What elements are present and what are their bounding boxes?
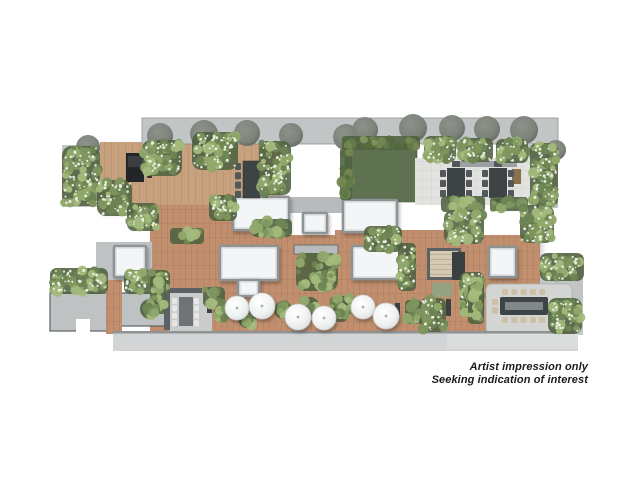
planting-bed xyxy=(102,284,107,289)
planting-bed-flower xyxy=(578,265,580,267)
planting-bed-flower xyxy=(128,275,129,276)
dining-table xyxy=(179,297,193,326)
planting-bed-flower xyxy=(545,221,548,224)
planting-bed-flower xyxy=(533,196,536,199)
planting-bed xyxy=(265,141,276,152)
planting-bed xyxy=(541,268,546,273)
artist-impression-canvas: Artist impression only Seeking indicatio… xyxy=(0,0,640,480)
planter-box xyxy=(317,251,329,263)
planting-bed xyxy=(214,133,225,144)
planting-bed-flower xyxy=(159,165,161,167)
planting-bed-flower xyxy=(461,240,463,242)
planting-bed-flower xyxy=(569,309,571,311)
planting-bed-flower xyxy=(285,145,287,147)
planting-bed xyxy=(272,157,280,165)
dining-chair xyxy=(172,313,177,319)
planting-bed-flower xyxy=(562,265,564,267)
planting-bed-flower xyxy=(460,231,462,233)
planting-bed xyxy=(74,190,85,201)
planting-bed-flower xyxy=(481,274,483,276)
planting-bed-flower xyxy=(76,200,78,202)
planting-bed-flower xyxy=(286,154,288,156)
planting-bed-flower xyxy=(477,155,479,157)
planting-bed-flower xyxy=(216,156,218,158)
planter-box xyxy=(328,273,333,278)
planting-bed-flower xyxy=(404,252,406,254)
planting-bed-flower xyxy=(153,162,156,165)
planting-bed-flower xyxy=(475,220,477,222)
dining-chair xyxy=(466,170,472,177)
planting-bed-flower xyxy=(569,266,571,268)
planting-bed-flower xyxy=(570,322,572,324)
planting-bed-flower xyxy=(542,161,545,164)
planting-bed-flower xyxy=(63,271,65,273)
planting-bed-flower xyxy=(219,196,221,198)
planting-bed xyxy=(409,298,419,308)
planting-bed xyxy=(205,159,211,165)
planting-bed-flower xyxy=(553,153,556,156)
planting-bed xyxy=(137,288,144,295)
planting-bed-flower xyxy=(545,260,547,262)
planting-bed-flower xyxy=(100,195,102,197)
planting-bed-flower xyxy=(463,285,466,288)
planting-bed-flower xyxy=(433,142,436,145)
communal-chair xyxy=(530,317,536,323)
planting-bed-flower xyxy=(463,280,465,282)
planting-bed-flower xyxy=(65,167,68,170)
planting-bed xyxy=(263,220,271,228)
planting-bed-flower xyxy=(575,258,578,261)
dining-chair xyxy=(466,180,472,187)
planting-bed-flower xyxy=(177,166,179,168)
planting-bed-flower xyxy=(524,141,526,143)
planting-bed-flower xyxy=(468,278,470,280)
planting-bed xyxy=(423,139,433,149)
dining-chair xyxy=(482,180,488,187)
planting-bed-flower xyxy=(125,210,127,212)
skylight xyxy=(489,247,516,277)
planting-bed-flower xyxy=(158,143,160,145)
planting-bed-flower xyxy=(78,184,80,186)
planting-bed-flower xyxy=(126,202,128,204)
planting-bed-flower xyxy=(70,156,72,158)
planting-bed-flower xyxy=(212,138,214,140)
planting-bed-flower xyxy=(453,148,455,150)
dining-chair xyxy=(172,298,177,304)
planting-bed xyxy=(202,286,208,292)
planting-bed xyxy=(468,140,473,145)
planting-bed xyxy=(523,236,530,243)
communal-chair xyxy=(502,289,508,295)
planting-bed-flower xyxy=(265,172,267,174)
planting-bed-flower xyxy=(135,271,137,273)
planting-bed-flower xyxy=(143,284,146,287)
dining-chair xyxy=(482,190,488,197)
planting-bed-flower xyxy=(229,152,231,154)
planting-bed-flower xyxy=(276,156,279,159)
planting-bed-flower xyxy=(204,163,206,165)
planting-bed-flower xyxy=(433,156,435,158)
dining-chair xyxy=(194,305,199,311)
planting-bed-flower xyxy=(165,273,167,275)
planting-bed-flower xyxy=(477,232,479,234)
planting-bed-flower xyxy=(261,188,263,190)
planting-bed xyxy=(249,224,260,235)
lawn-hedge xyxy=(371,140,377,146)
planting-bed xyxy=(205,298,216,309)
planting-bed xyxy=(548,209,553,214)
planting-bed xyxy=(460,302,466,308)
planting-bed-flower xyxy=(84,186,86,188)
planting-bed-flower xyxy=(550,267,553,270)
planter-box xyxy=(330,253,341,264)
planting-bed-flower xyxy=(396,228,398,230)
planting-bed-flower xyxy=(453,232,455,234)
planting-bed-flower xyxy=(65,196,67,198)
planting-bed-flower xyxy=(546,238,548,240)
planting-bed-flower xyxy=(404,267,407,270)
planter-box xyxy=(296,269,301,274)
planting-bed-flower xyxy=(541,262,543,264)
flower-planter-flower xyxy=(433,321,436,324)
dining-table xyxy=(489,168,507,198)
planting-bed-flower xyxy=(558,277,560,279)
planting-bed xyxy=(448,202,457,211)
planting-bed-flower xyxy=(139,206,141,208)
communal-chair xyxy=(539,317,545,323)
planting-bed-flower xyxy=(440,139,442,141)
planting-bed-flower xyxy=(72,176,75,179)
planting-bed-flower xyxy=(446,147,448,149)
planting-bed-flower xyxy=(145,146,147,148)
planting-bed xyxy=(145,222,151,228)
planting-bed-flower xyxy=(213,135,216,138)
planting-bed-flower xyxy=(548,276,550,278)
planting-bed-flower xyxy=(543,174,546,177)
planting-bed-flower xyxy=(89,283,91,285)
planting-bed xyxy=(156,149,162,155)
planting-bed-flower xyxy=(503,157,505,159)
lawn-hedge xyxy=(339,187,349,197)
planting-bed-flower xyxy=(68,280,70,282)
planting-bed-flower xyxy=(532,164,534,166)
communal-chair xyxy=(511,317,517,323)
planting-bed-flower xyxy=(531,228,533,230)
planting-bed-flower xyxy=(532,176,534,178)
planting-bed-flower xyxy=(146,156,148,158)
planting-bed-flower xyxy=(152,165,154,167)
planting-bed-flower xyxy=(544,189,546,191)
planting-bed-flower xyxy=(448,158,450,160)
planting-bed-flower xyxy=(553,201,555,203)
planting-bed-flower xyxy=(561,277,564,280)
lawn-hedge xyxy=(345,148,354,157)
planting-bed-flower xyxy=(544,266,546,268)
planting-bed-flower xyxy=(104,184,107,187)
planting-bed-flower xyxy=(58,284,61,287)
planting-bed-flower xyxy=(131,290,133,292)
planting-bed-flower xyxy=(576,262,578,264)
planting-bed-flower xyxy=(568,271,571,274)
planting-bed-flower xyxy=(162,146,165,149)
planting-bed xyxy=(280,165,286,171)
planting-bed-flower xyxy=(554,171,557,174)
planting-bed-flower xyxy=(459,214,461,216)
planting-bed-flower xyxy=(544,177,546,179)
flower-planter-flower xyxy=(437,316,439,318)
planting-bed-flower xyxy=(276,179,278,181)
communal-chair xyxy=(502,317,508,323)
planting-bed-flower xyxy=(480,155,482,157)
planting-bed-flower xyxy=(126,190,129,193)
planting-bed-flower xyxy=(538,236,540,238)
planting-bed-flower xyxy=(217,208,219,210)
planter-box xyxy=(310,275,319,284)
planting-bed-flower xyxy=(475,234,478,237)
umbrella-table-pole xyxy=(362,306,365,309)
planting-bed-flower xyxy=(157,147,160,150)
planting-bed-flower xyxy=(219,209,221,211)
planting-bed-flower xyxy=(141,218,144,221)
planting-bed-flower xyxy=(157,151,159,153)
caption-line-1: Artist impression only xyxy=(432,361,588,374)
planting-bed-flower xyxy=(226,142,229,145)
planting-bed-flower xyxy=(576,330,578,332)
planting-bed-flower xyxy=(377,229,379,231)
planting-bed-flower xyxy=(397,230,399,232)
planting-bed-flower xyxy=(95,177,97,179)
planting-bed-flower xyxy=(448,217,450,219)
planting-bed-flower xyxy=(87,192,88,193)
communal-chair xyxy=(492,308,498,314)
planting-bed-flower xyxy=(479,142,481,144)
planting-bed xyxy=(265,151,272,158)
planting-bed-flower xyxy=(279,175,282,178)
planting-bed-flower xyxy=(58,290,60,292)
planting-bed-flower xyxy=(427,156,430,159)
planting-bed-flower xyxy=(523,212,525,214)
planting-bed xyxy=(52,286,63,297)
planting-bed-flower xyxy=(539,168,542,171)
planting-bed-flower xyxy=(219,165,222,168)
planting-bed xyxy=(114,196,123,205)
planting-bed xyxy=(209,287,219,297)
planting-bed-flower xyxy=(75,190,77,192)
planting-bed-flower xyxy=(453,156,455,158)
planting-bed-flower xyxy=(280,181,282,183)
planting-bed-flower xyxy=(193,162,195,164)
planting-bed-flower xyxy=(88,156,90,158)
planting-bed-flower xyxy=(482,152,485,155)
planting-bed-flower xyxy=(200,166,203,169)
planting-bed-flower xyxy=(86,160,88,162)
flower-planter-flower xyxy=(426,312,427,313)
planting-bed-flower xyxy=(206,154,209,157)
planting-bed-flower xyxy=(233,215,234,216)
planting-bed-flower xyxy=(464,217,466,219)
planting-bed-flower xyxy=(575,267,577,269)
planting-bed-flower xyxy=(563,304,565,306)
planting-bed-flower xyxy=(538,148,541,151)
planting-bed-flower xyxy=(229,146,232,149)
planting-bed xyxy=(189,228,200,239)
dining-chair xyxy=(235,172,241,179)
planting-bed-flower xyxy=(168,168,170,170)
planting-bed xyxy=(132,204,138,210)
walkway-shelf xyxy=(283,197,347,213)
planting-bed-flower xyxy=(217,161,219,163)
planting-bed-flower xyxy=(223,200,226,203)
planting-bed-flower xyxy=(213,204,216,207)
lawn-hedge xyxy=(405,137,412,144)
planting-bed-flower xyxy=(118,189,120,191)
planter-box xyxy=(318,282,327,291)
planting-bed-flower xyxy=(144,208,145,209)
planting-bed-flower xyxy=(461,296,464,299)
planting-bed xyxy=(86,278,93,285)
planting-bed-flower xyxy=(539,226,541,228)
planting-bed-flower xyxy=(232,137,233,138)
flower-planter-flower xyxy=(424,322,427,325)
planting-bed-flower xyxy=(430,153,432,155)
planting-bed-flower xyxy=(556,315,558,317)
planting-bed xyxy=(227,200,234,207)
dining-chair xyxy=(172,305,177,311)
planting-bed xyxy=(552,253,558,259)
planting-bed-flower xyxy=(541,180,543,182)
planting-bed-flower xyxy=(280,154,282,156)
planting-bed xyxy=(542,190,551,199)
planting-bed xyxy=(203,143,214,154)
planting-bed-flower xyxy=(98,182,101,185)
planting-bed xyxy=(402,313,413,324)
planting-bed-flower xyxy=(215,147,218,150)
planting-bed-flower xyxy=(267,168,269,170)
planting-bed-flower xyxy=(71,281,73,283)
planting-bed-flower xyxy=(79,155,81,157)
flower-planter-flower xyxy=(440,301,442,303)
planting-bed xyxy=(550,165,556,171)
planting-bed-flower xyxy=(223,208,225,210)
dining-table xyxy=(447,168,465,198)
planting-bed-flower xyxy=(91,284,93,286)
planting-bed-flower xyxy=(273,174,276,177)
planting-bed-flower xyxy=(462,237,464,239)
planting-bed-flower xyxy=(116,209,119,212)
planting-bed-flower xyxy=(263,147,265,149)
planting-bed-flower xyxy=(382,231,384,233)
dining-chair xyxy=(482,170,488,177)
planting-bed xyxy=(552,186,558,192)
planting-bed-flower xyxy=(536,145,538,147)
planter-box xyxy=(315,264,321,270)
planting-bed xyxy=(462,234,473,245)
planting-bed-flower xyxy=(571,314,573,316)
planting-bed-flower xyxy=(511,153,513,155)
planting-bed-flower xyxy=(400,277,402,279)
planting-bed-flower xyxy=(108,195,110,197)
planting-bed-flower xyxy=(370,246,372,248)
planting-bed-flower xyxy=(227,138,229,140)
planting-bed xyxy=(169,151,177,159)
planting-bed-flower xyxy=(87,202,89,204)
planting-bed-flower xyxy=(84,290,86,292)
planting-bed xyxy=(491,200,496,205)
dining-chair xyxy=(440,180,446,187)
planter-box xyxy=(298,284,305,291)
planting-bed-flower xyxy=(233,137,236,140)
communal-chair xyxy=(511,289,517,295)
planting-bed xyxy=(472,311,482,321)
planting-bed-flower xyxy=(537,166,539,168)
planting-bed-flower xyxy=(134,216,136,218)
planting-bed xyxy=(381,228,392,239)
planting-bed-flower xyxy=(129,272,132,275)
planting-bed-flower xyxy=(69,270,72,273)
skylight xyxy=(303,213,327,233)
planting-bed xyxy=(159,300,169,310)
planting-bed-flower xyxy=(569,304,571,306)
planting-bed xyxy=(66,186,72,192)
planting-bed-flower xyxy=(546,233,549,236)
planting-bed-flower xyxy=(455,230,457,232)
planting-bed-flower xyxy=(266,174,268,176)
planting-bed-flower xyxy=(526,240,528,242)
planting-bed-flower xyxy=(102,212,105,215)
planting-bed-flower xyxy=(565,303,567,305)
planting-bed-flower xyxy=(450,155,452,157)
planting-bed-flower xyxy=(64,156,66,158)
planting-bed xyxy=(89,199,97,207)
planting-bed xyxy=(345,297,352,304)
planting-bed-flower xyxy=(411,265,413,267)
planting-bed-flower xyxy=(537,164,538,165)
planting-bed xyxy=(500,198,507,205)
planting-bed xyxy=(148,268,156,276)
planting-bed-flower xyxy=(199,143,201,145)
planting-bed-flower xyxy=(394,242,397,245)
planting-bed-flower xyxy=(377,241,380,244)
planting-bed xyxy=(195,156,204,165)
planting-bed-flower xyxy=(165,144,167,146)
flower-planter-flower xyxy=(428,313,429,314)
flower-planter xyxy=(418,323,429,334)
planting-bed xyxy=(505,137,513,145)
planting-bed-flower xyxy=(572,256,574,258)
planting-bed-flower xyxy=(214,158,216,160)
planting-bed xyxy=(475,301,484,310)
flower-planter-flower xyxy=(422,300,425,303)
planting-bed xyxy=(138,268,147,277)
planting-bed-flower xyxy=(559,327,561,329)
planting-bed-flower xyxy=(195,147,198,150)
planting-bed-flower xyxy=(206,135,208,137)
planting-bed xyxy=(106,205,116,215)
planting-bed-flower xyxy=(157,166,159,168)
planting-bed-flower xyxy=(446,222,449,225)
planting-bed-flower xyxy=(82,269,85,272)
planting-bed xyxy=(562,308,568,314)
planting-bed-flower xyxy=(89,183,92,186)
planting-bed-flower xyxy=(370,236,372,238)
dining-chair xyxy=(452,161,460,167)
planting-bed-flower xyxy=(119,205,122,208)
planting-bed-flower xyxy=(84,173,87,176)
planting-bed-flower xyxy=(371,242,374,245)
planting-bed-flower xyxy=(89,178,91,180)
planting-bed-flower xyxy=(407,270,409,272)
dining-chair xyxy=(235,182,241,189)
